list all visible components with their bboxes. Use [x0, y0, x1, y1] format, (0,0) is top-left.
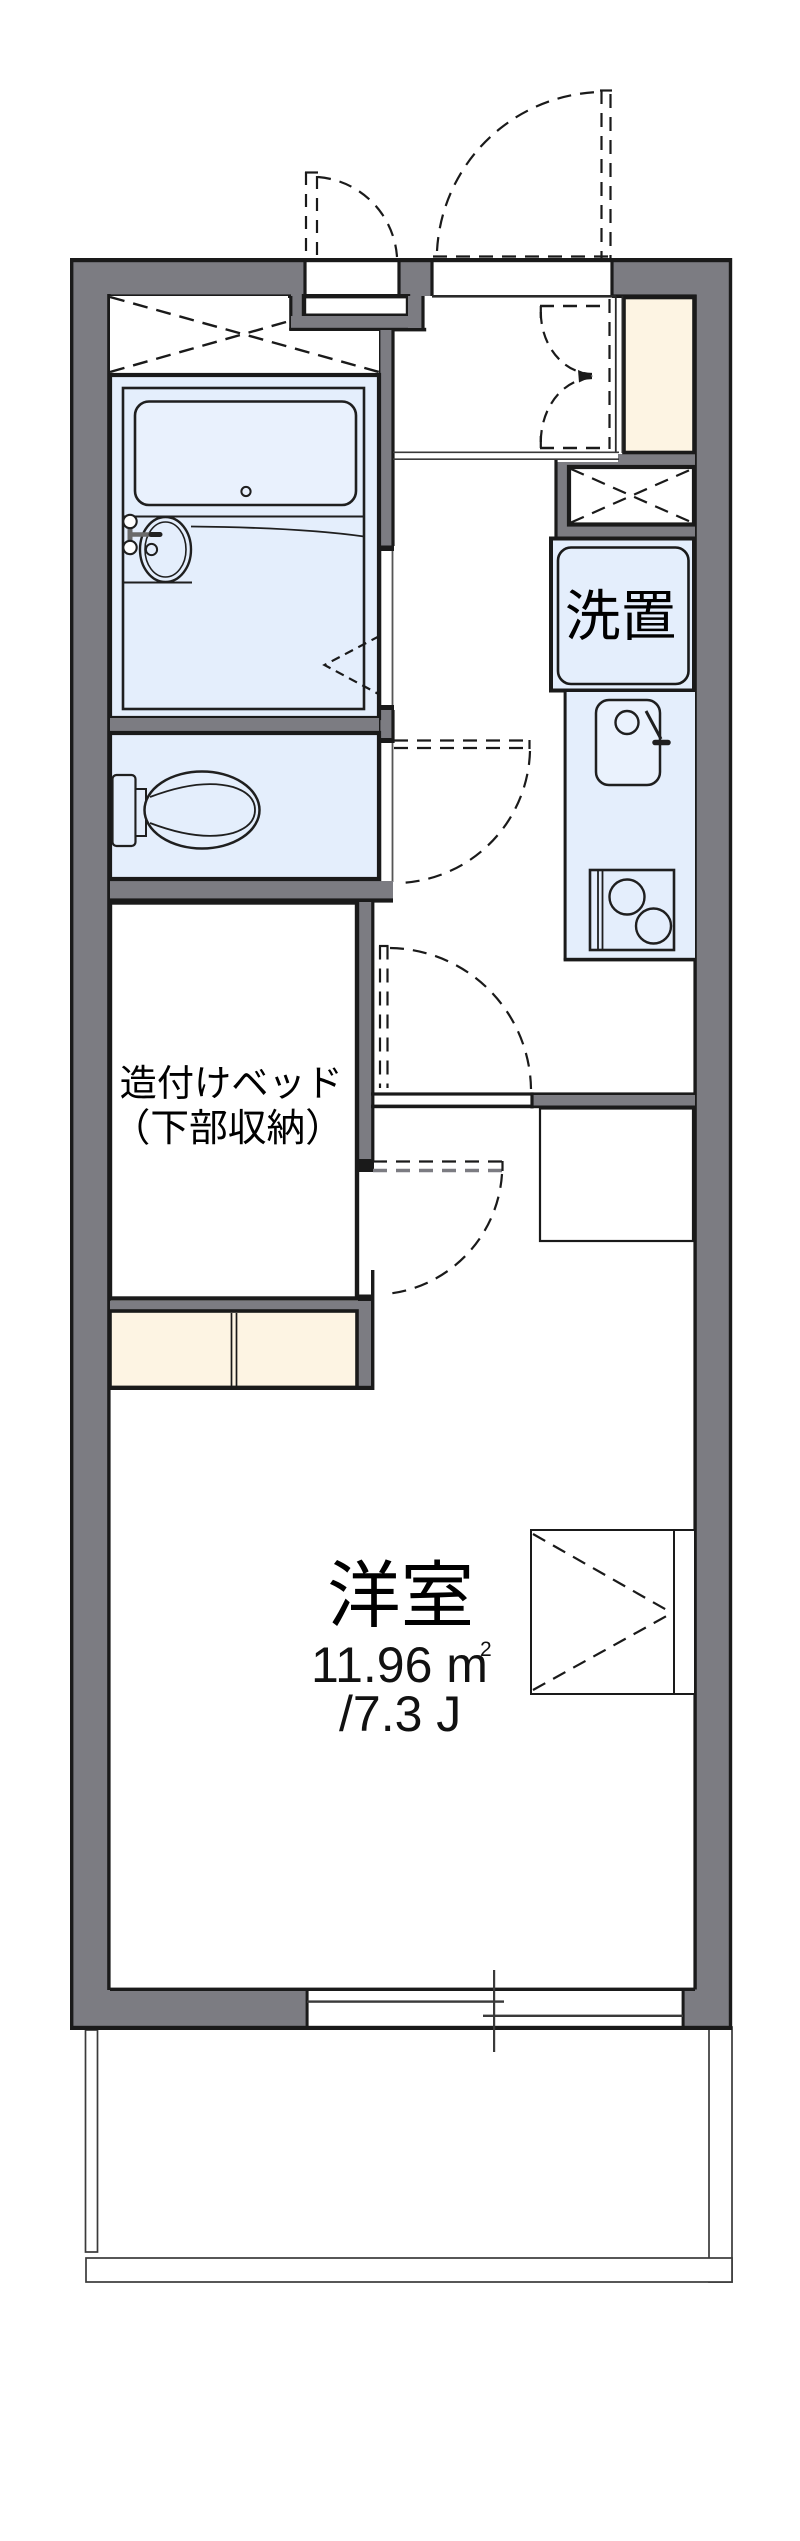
svg-text:2: 2 — [480, 1638, 492, 1661]
svg-text:/7.3 J: /7.3 J — [339, 1686, 461, 1742]
svg-text:11.96 m: 11.96 m — [311, 1637, 488, 1693]
